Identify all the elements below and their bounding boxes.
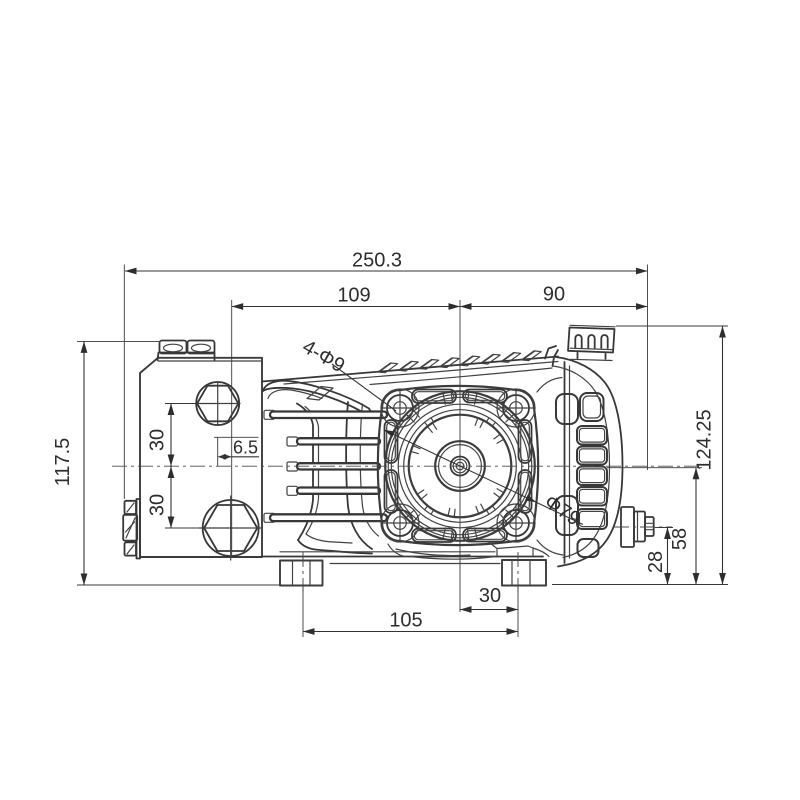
- svg-text:117.5: 117.5: [52, 438, 74, 487]
- svg-text:58: 58: [669, 528, 691, 550]
- svg-text:28: 28: [645, 551, 667, 573]
- svg-text:90: 90: [543, 284, 565, 306]
- svg-text:105: 105: [389, 610, 422, 632]
- svg-text:30: 30: [147, 494, 169, 516]
- svg-text:30: 30: [479, 585, 501, 607]
- svg-text:6.5: 6.5: [233, 438, 258, 458]
- svg-text:109: 109: [337, 285, 370, 307]
- svg-text:250.3: 250.3: [352, 250, 402, 272]
- svg-text:30: 30: [147, 429, 169, 451]
- svg-text:124.25: 124.25: [694, 409, 716, 470]
